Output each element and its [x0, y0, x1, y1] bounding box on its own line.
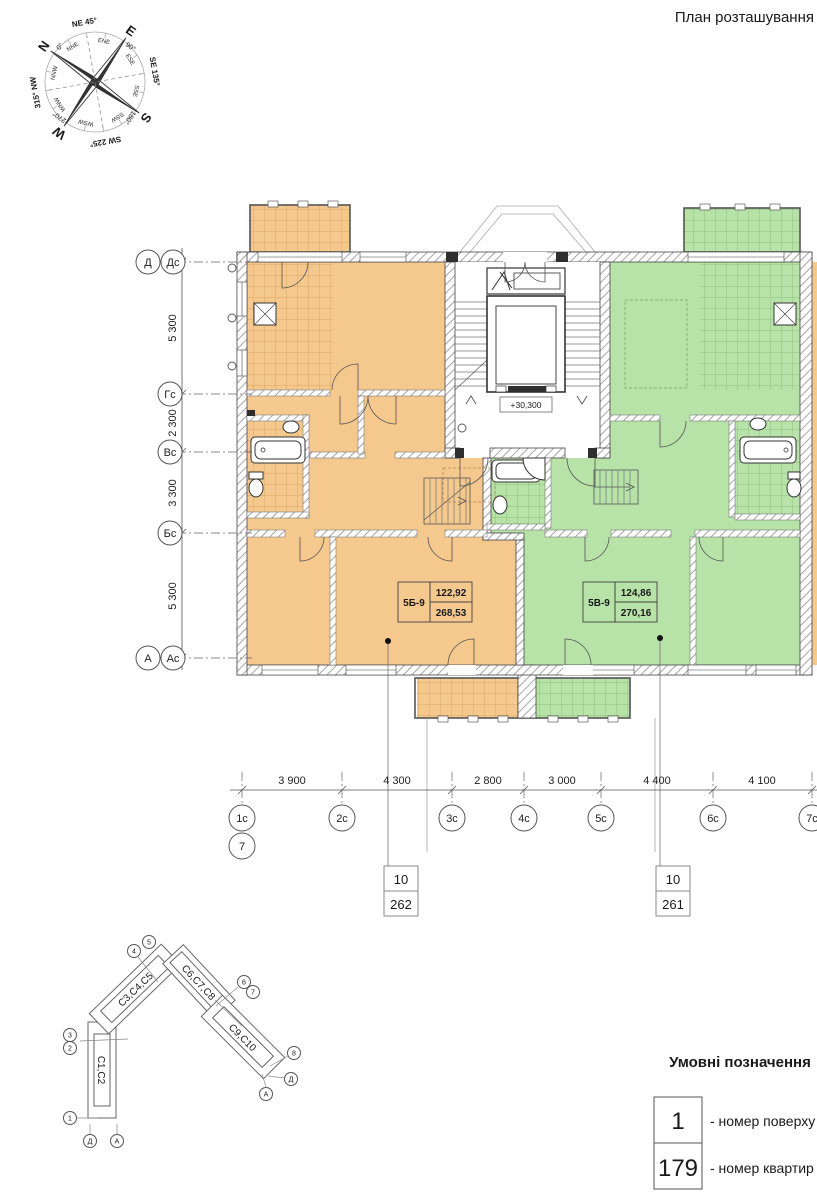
axis-bubble-a: А: [144, 653, 152, 665]
toilet-center: [493, 496, 507, 514]
axis-bubble-7: 7: [239, 841, 245, 853]
axis-bubble-3s: 3с: [446, 813, 458, 825]
compass-deg-s: 180°: [122, 109, 137, 126]
axis-bubble-as: Ас: [167, 653, 180, 665]
compass-minor-wnw: WNW: [54, 96, 68, 113]
compass-label-e: E: [123, 22, 139, 39]
apartment-number-left: 262: [390, 897, 412, 912]
dim-bottom-6: 4 100: [748, 775, 776, 787]
bay-window-outline: [460, 206, 595, 252]
elevation-mark: +30,300: [500, 397, 552, 412]
toilet-left: [249, 472, 263, 497]
key-plan: С1,С2 С3,С4,С5 С6,С7,С8 С9,С10 4 5 3 2 1…: [64, 936, 301, 1148]
sink-left: [283, 421, 299, 433]
leader-box-left: 10 262: [384, 866, 418, 916]
bathroom-right-tiles: [735, 421, 800, 514]
balcony-top-left: [250, 201, 350, 252]
compass-minor-ese: ESE: [124, 53, 136, 66]
keyplan-marker-a1: А: [115, 1139, 120, 1146]
axis-bubble-5s: 5с: [595, 813, 607, 825]
axis-grid-bottom: 3 900 4 300 2 800 3 000 4 400 4 100 1с 7…: [229, 718, 817, 859]
compass-minor-nnw: NNW: [50, 65, 59, 81]
toilet-right: [787, 472, 801, 497]
elevation-value: +30,300: [511, 400, 542, 410]
keyplan-marker-1: 1: [68, 1116, 72, 1123]
axis-bubble-d: Д: [144, 257, 152, 269]
floor-number-right: 10: [666, 872, 680, 887]
adjacent-unit-sliver: [812, 262, 817, 665]
tiled-room-right: [700, 262, 800, 390]
keyplan-marker-d2: Д: [289, 1077, 294, 1084]
keyplan-label-s1: С1,С2: [95, 1056, 106, 1085]
compass-minor-sse: SSE: [131, 84, 139, 97]
axis-bubble-2s: 2с: [336, 813, 348, 825]
keyplan-marker-7: 7: [251, 990, 255, 997]
floor-plan-drawing: План розташування N 0° E 90° S 180° W 27…: [0, 0, 817, 1200]
compass-label-sw: SW 225°: [89, 134, 122, 148]
unit-boundary-wall-jog: [483, 533, 524, 540]
keyplan-marker-a2: А: [264, 1092, 269, 1099]
washer-left: [254, 303, 276, 325]
dim-bottom-3: 2 800: [474, 775, 502, 787]
facade-vents: [228, 264, 236, 370]
legend-floor-symbol: 1: [671, 1108, 684, 1135]
axis-bubble-7s: 7с: [806, 813, 817, 825]
legend: Умовні позначення 1 179 - номер поверху …: [654, 1054, 815, 1189]
compass-deg-w: 270°: [51, 109, 68, 124]
keyplan-marker-d1: Д: [88, 1139, 93, 1146]
floor-plan-page: План розташування N 0° E 90° S 180° W 27…: [0, 0, 817, 1200]
axis-bubble-ds: Дс: [167, 257, 180, 269]
bathtub-left: [251, 437, 305, 463]
compass-label-s: S: [137, 110, 154, 126]
floor-plan: +30,300: [228, 201, 817, 866]
leader-dot-left: [385, 638, 391, 644]
axis-bubble-vs: Вс: [164, 447, 177, 459]
dim-bottom-1: 3 900: [278, 775, 306, 787]
dim-bottom-4: 3 000: [548, 775, 576, 787]
leader-dot-right: [657, 635, 663, 641]
stairwell: +30,300: [445, 262, 610, 458]
axis-bubble-bs: Бс: [164, 528, 177, 540]
axis-bubble-6s: 6с: [707, 813, 719, 825]
compass-label-n: N: [35, 38, 53, 54]
legend-apartment-label: - номер квартир: [710, 1160, 814, 1176]
compass-label-nw: 315° NW: [28, 75, 43, 109]
dim-bottom-2: 4 300: [383, 775, 411, 787]
apartment-number-right: 261: [662, 897, 684, 912]
elevator: [487, 268, 565, 392]
balcony-top-right: [684, 204, 800, 252]
unit-code-right: 5В-9: [588, 598, 610, 609]
keyplan-section-1: С1,С2: [88, 1022, 116, 1118]
unit-boundary-wall-lower: [516, 540, 524, 665]
compass-label-ne: NE 45°: [71, 16, 98, 29]
dim-left-1: 5 300: [167, 314, 179, 342]
axis-bubble-1s: 1с: [236, 813, 248, 825]
unit-area-upper-right: 124,86: [621, 588, 652, 599]
keyplan-marker-6: 6: [242, 980, 246, 987]
legend-heading: Умовні позначення: [669, 1054, 811, 1071]
unit-area-lower-right: 270,16: [621, 608, 652, 619]
keyplan-marker-2: 2: [68, 1046, 72, 1053]
compass-needle-fill: [20, 7, 170, 157]
dim-left-2: 2 300: [167, 409, 179, 437]
washer-right: [774, 303, 796, 325]
leader-box-right: 10 261: [656, 866, 690, 916]
compass-minor-nne: NNE: [66, 41, 80, 53]
party-wall-right: [800, 252, 812, 675]
keyplan-marker-5: 5: [147, 940, 151, 947]
axis-grid-left: Д Дс Гс Вс Бс А Ас 5 300 2 300 3 300 5 3…: [136, 248, 252, 670]
unit-area-upper-left: 122,92: [436, 588, 467, 599]
tiled-room-left: [247, 262, 333, 390]
compass-minor-wsw: WSW: [78, 117, 95, 126]
dim-left-3: 3 300: [167, 479, 179, 507]
compass-label-w: W: [49, 123, 68, 143]
dim-left-4: 5 300: [167, 582, 179, 610]
unit-code-left: 5Б-9: [403, 598, 425, 609]
keyplan-marker-3: 3: [68, 1033, 72, 1040]
floor-number-left: 10: [394, 872, 408, 887]
dim-bottom-5: 4 400: [643, 775, 671, 787]
keyplan-marker-4: 4: [132, 949, 136, 956]
axis-bubble-gs: Гс: [164, 389, 176, 401]
page-title: План розташування: [675, 9, 814, 26]
axis-bubble-4s: 4с: [518, 813, 530, 825]
compass-minor-ene: ENE: [97, 38, 110, 47]
legend-apartment-symbol: 179: [658, 1155, 698, 1182]
sink-right: [750, 418, 766, 430]
legend-floor-label: - номер поверху: [710, 1113, 815, 1129]
bathroom-left-tiles: [247, 421, 307, 512]
keyplan-section-4-highlighted: С9,С10: [201, 995, 284, 1078]
bathtub-right: [740, 437, 796, 463]
compass-label-se: SE 135°: [148, 56, 162, 87]
compass-minor-ssw: SSW: [109, 110, 124, 123]
compass-rose: N 0° E 90° S 180° W 270° NE 45° SE 135° …: [0, 0, 192, 179]
unit-area-lower-left: 268,53: [436, 608, 467, 619]
keyplan-marker-8: 8: [292, 1051, 296, 1058]
